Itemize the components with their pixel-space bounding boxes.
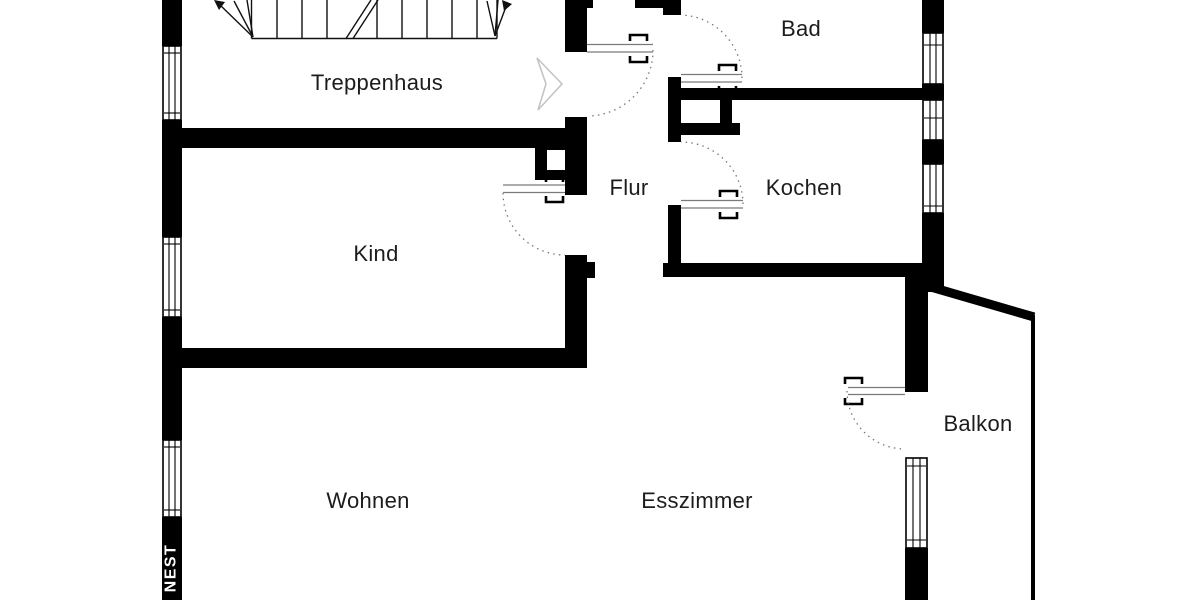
staircase <box>214 0 512 39</box>
room-label-balkon: Balkon <box>943 411 1012 437</box>
room-label-kochen: Kochen <box>766 175 842 201</box>
room-label-kind: Kind <box>353 241 398 267</box>
window-kind-west <box>163 237 181 317</box>
room-label-esszimmer: Esszimmer <box>641 488 752 514</box>
walls <box>162 0 1034 600</box>
watermark-text: NEST <box>163 543 181 592</box>
door-treppenhaus <box>587 35 653 116</box>
doors <box>503 15 905 449</box>
window-kochen-east-lower <box>923 164 943 213</box>
door-kind <box>503 176 565 255</box>
stair-arrow-left <box>214 0 253 37</box>
watermark: NEST <box>160 535 183 600</box>
wall-bad-kochen <box>681 88 944 100</box>
window-treppenhaus-west <box>163 46 181 120</box>
room-label-treppenhaus: Treppenhaus <box>311 70 443 96</box>
room-label-wohnen: Wohnen <box>326 488 409 514</box>
direction-arrow <box>537 58 562 110</box>
door-bad <box>681 15 742 92</box>
window-kochen-east-upper <box>923 100 943 140</box>
window-balkon-wall <box>906 458 927 548</box>
room-label-bad: Bad <box>781 16 821 42</box>
wall-bad-kochen-west <box>668 77 681 265</box>
window-wohnen-west <box>163 440 181 517</box>
window-bad-east <box>923 33 943 84</box>
windows <box>163 33 943 548</box>
stair-arrow-right <box>487 0 512 36</box>
floorplan-canvas: Treppenhaus Bad Flur Kochen Kind Wohnen … <box>0 0 1200 600</box>
wall-flur-west <box>565 0 595 368</box>
door-balkon <box>845 378 905 449</box>
wall-esszimmer-balkon <box>905 270 928 600</box>
room-label-flur: Flur <box>609 175 648 201</box>
door-kochen <box>681 142 743 218</box>
balcony-parapet <box>924 285 1034 600</box>
wall-kind-wohnen <box>162 348 587 368</box>
wall-kochen-esszimmer <box>663 263 944 277</box>
wall-stub-bad-north <box>635 0 681 15</box>
floorplan-drawing <box>0 0 1200 600</box>
wall-treppenhaus-kind <box>162 128 587 148</box>
